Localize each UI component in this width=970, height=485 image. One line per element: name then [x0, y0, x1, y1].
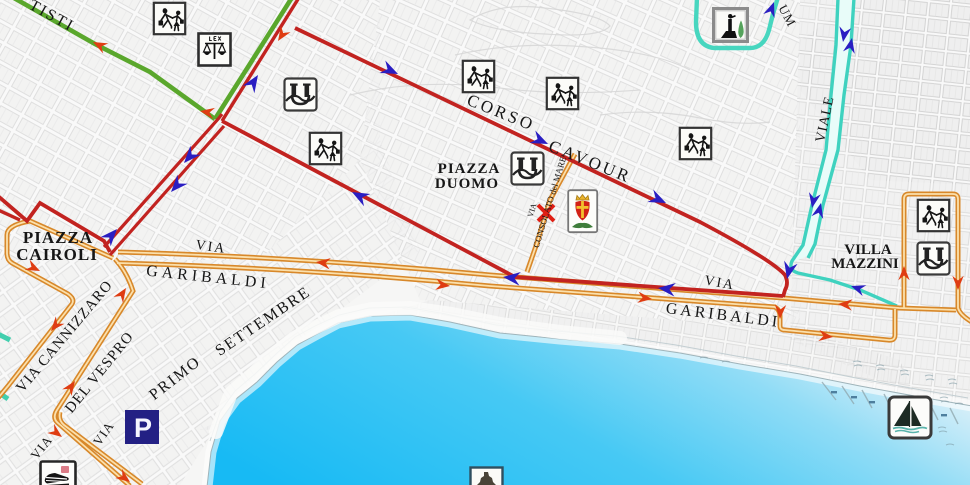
svg-text:CAIROLI: CAIROLI [16, 245, 98, 264]
svg-text:PIAZZA: PIAZZA [438, 161, 501, 177]
svg-text:DUOMO: DUOMO [435, 176, 499, 192]
svg-text:P: P [134, 413, 152, 443]
svg-text:MAZZINI: MAZZINI [831, 256, 899, 272]
